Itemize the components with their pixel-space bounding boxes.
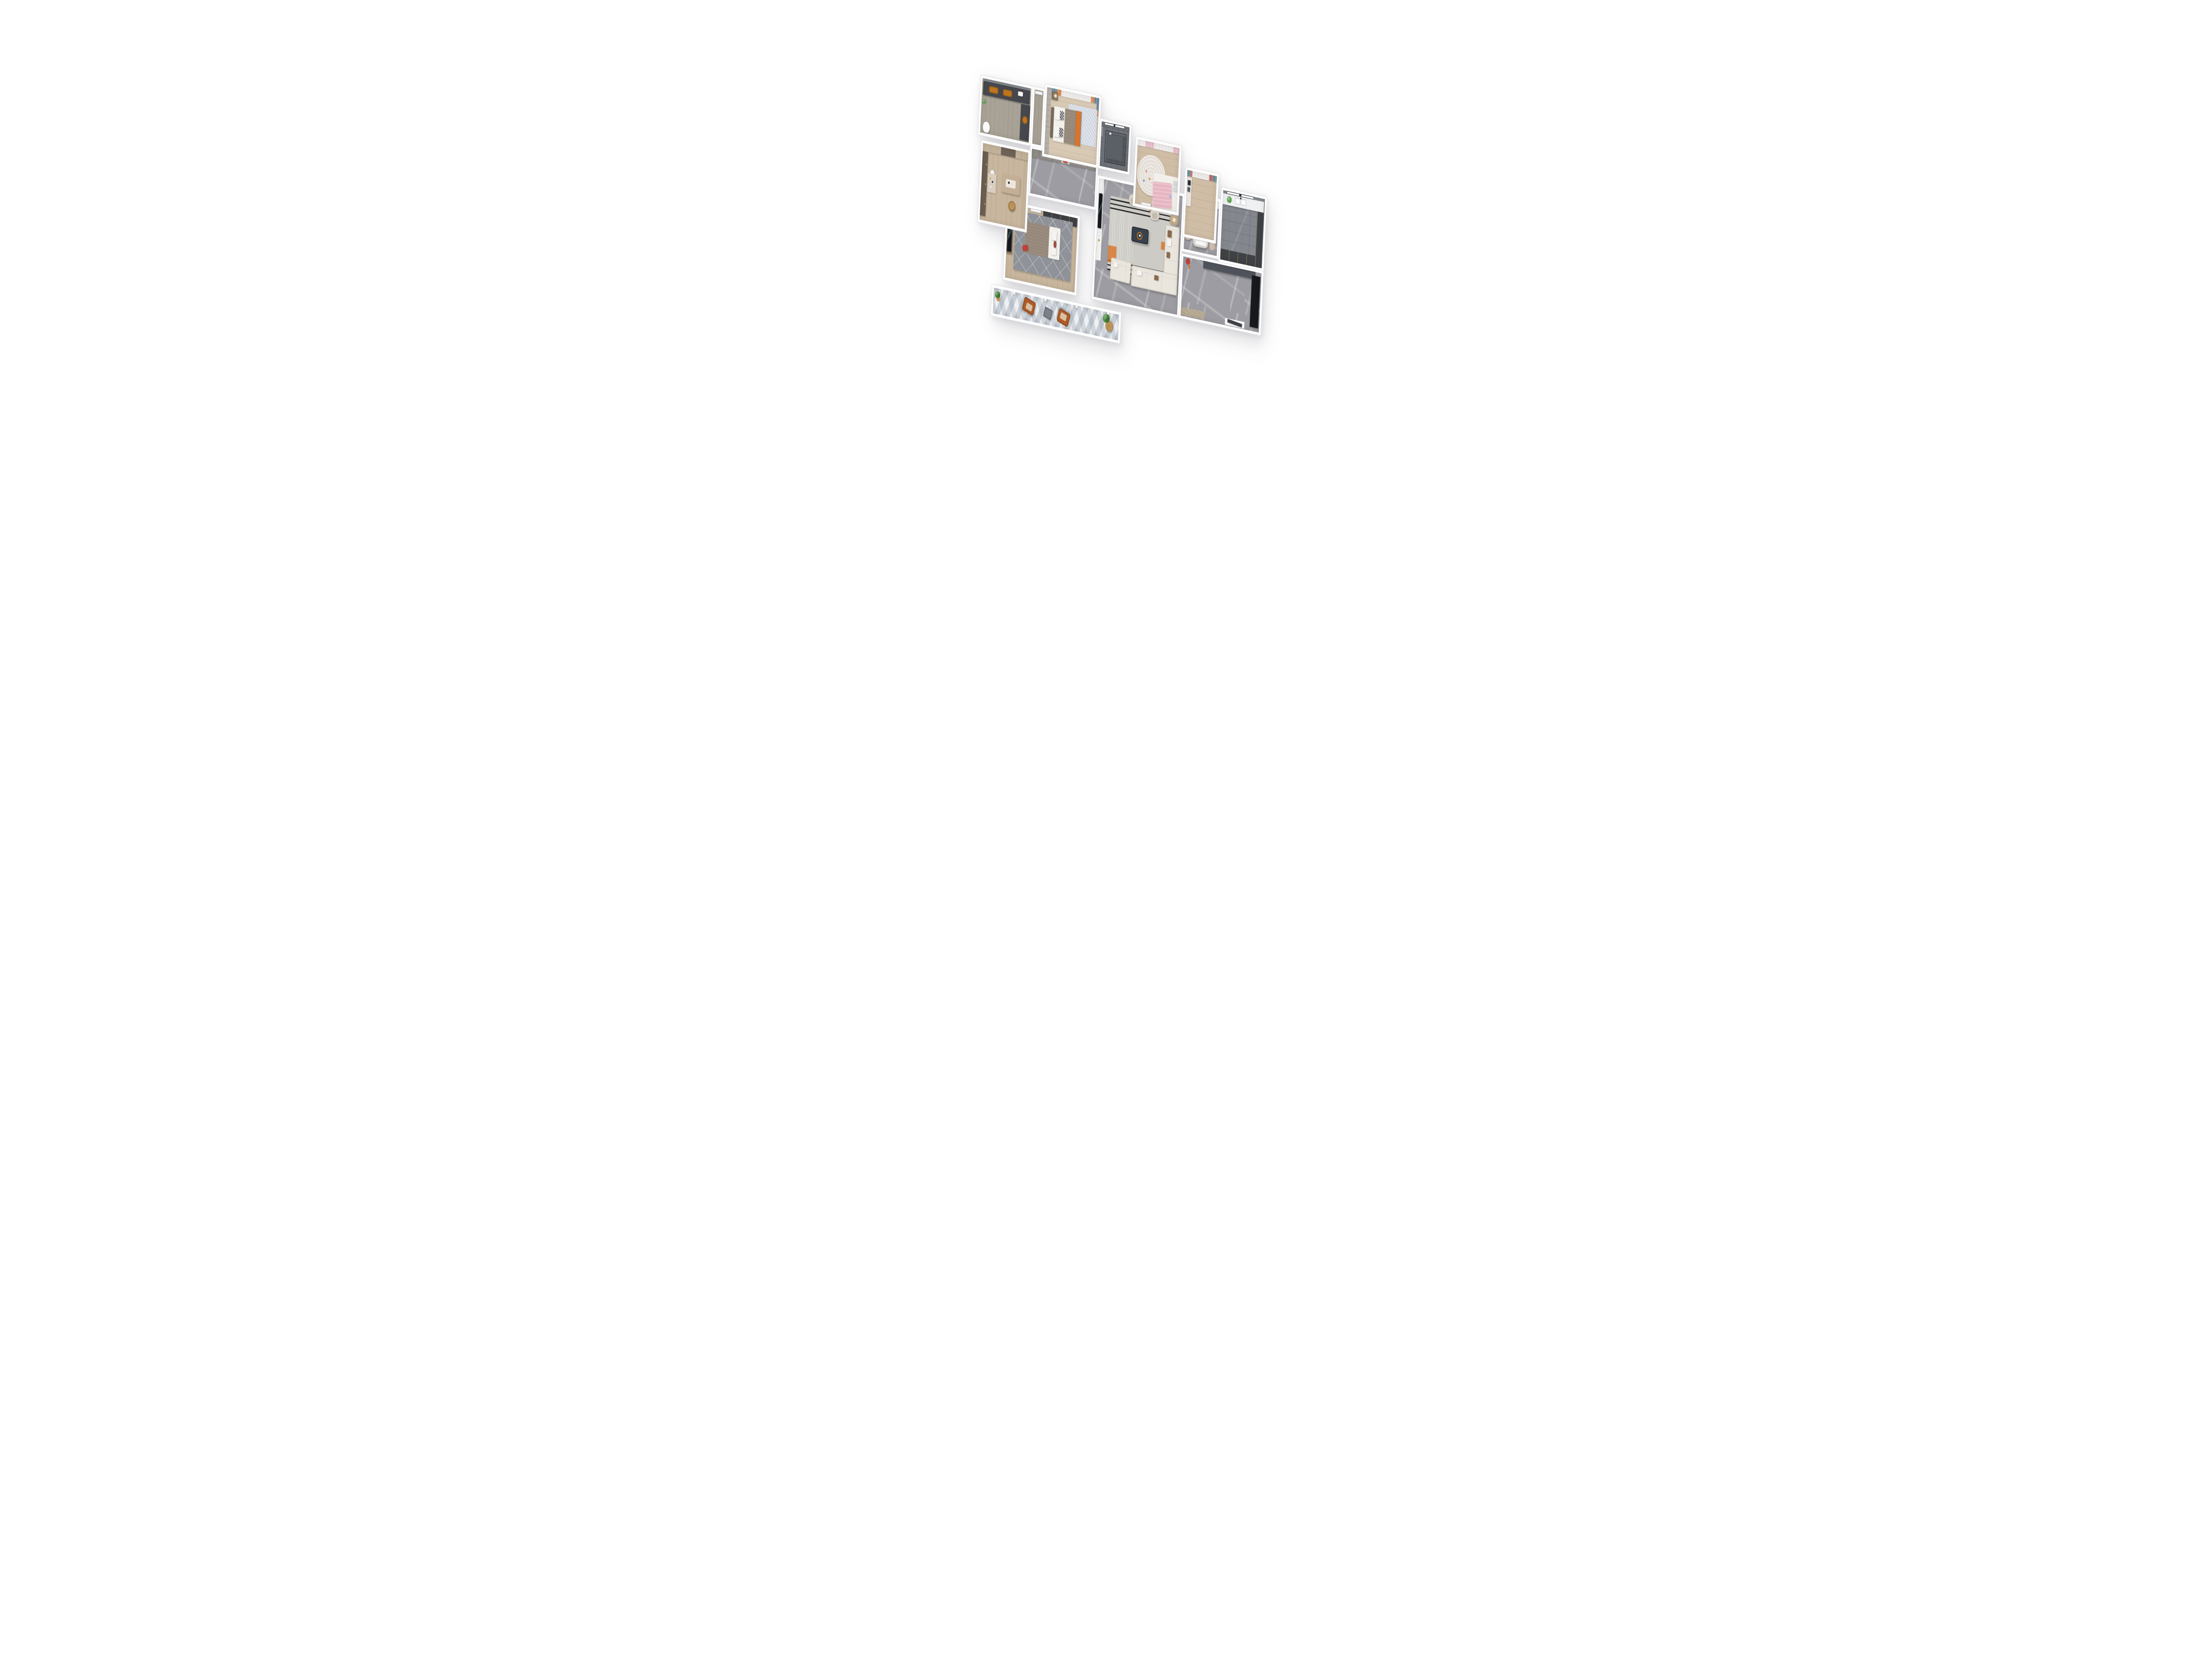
kids-door	[1141, 202, 1151, 207]
zigzag-pillow-2	[1059, 128, 1063, 137]
dressing-desk	[1001, 173, 1020, 196]
sofa-pillow-white-1	[1167, 239, 1172, 247]
teddy-bear	[1169, 195, 1172, 198]
study-curtain-teal-2	[1213, 176, 1217, 183]
oval-mirror	[1101, 126, 1103, 136]
kitchen-faucet	[1240, 197, 1241, 199]
cosmetic-3	[990, 185, 992, 188]
orange-sink-2	[1003, 89, 1012, 97]
cabinet-handle-3	[984, 203, 985, 205]
sofa-pillow-brown-2	[1167, 252, 1170, 258]
sofa-pillow-brown-3	[1154, 275, 1159, 281]
cabinet-handle-2	[985, 183, 986, 185]
rattan-stool	[1008, 200, 1016, 212]
bedroom2-blanket	[1024, 221, 1051, 258]
vanity-table	[987, 173, 996, 194]
wood-threshold	[1181, 307, 1205, 320]
glass-shower	[1104, 130, 1126, 166]
master-bedroom	[1042, 84, 1101, 168]
toilet	[983, 121, 990, 133]
kids-curtain-pink-1	[1145, 141, 1154, 149]
dressing-room	[978, 140, 1030, 232]
coat-stand	[1186, 258, 1190, 265]
kids-curtain-pink-2	[1173, 147, 1179, 154]
cabinet-handle-1	[986, 163, 987, 165]
silver-pillow-1	[1173, 181, 1178, 186]
frame-post-2	[1044, 298, 1047, 301]
master-curtains	[1051, 88, 1099, 104]
kids-bed	[1152, 172, 1179, 212]
tea-tray	[1006, 179, 1016, 189]
sofa-pillow-white-2	[1137, 270, 1142, 276]
sofa-pillow-white-3	[1114, 262, 1118, 268]
kitchen-plant	[1227, 196, 1232, 203]
living-tv	[1098, 193, 1103, 228]
shower-fixture	[1109, 132, 1112, 135]
frame-post-3	[1076, 305, 1078, 308]
closet-door	[1035, 91, 1043, 96]
study-curtain-sheer	[1192, 171, 1209, 181]
bathroom	[978, 75, 1033, 145]
ensuite-shower	[1098, 118, 1131, 175]
sofa-pillow-brown-1	[1168, 230, 1172, 238]
study	[1183, 167, 1219, 243]
study-frame-2	[1187, 187, 1190, 192]
zigzag-pillow-1	[1060, 111, 1064, 120]
bedroom2-pillow-1	[1052, 231, 1057, 241]
towel-stack	[1018, 91, 1023, 97]
tray-teaset	[1139, 234, 1141, 237]
shower-tray	[1107, 134, 1123, 161]
shower-window	[1104, 122, 1125, 129]
kids-curtain-sheer	[1154, 143, 1173, 153]
bedside-lamp	[1054, 93, 1057, 98]
nightstand	[1051, 91, 1058, 100]
maroon-pillow	[1054, 241, 1057, 248]
silver-pillow-2	[1173, 187, 1177, 192]
apartment-plan: SKYDANCE	[970, 68, 1273, 378]
kids-curtains	[1137, 139, 1179, 154]
entry-tall-cabinet	[1249, 275, 1260, 328]
kids-bedroom	[1133, 136, 1182, 215]
cosmetic-2	[992, 181, 993, 183]
study-sideboard	[1186, 177, 1192, 206]
balcony-side-table	[1043, 307, 1053, 320]
orange-vase	[1189, 264, 1190, 269]
dressing-wall-cabinets	[983, 143, 1028, 161]
toy-3	[1143, 179, 1145, 182]
accent-chair-2-cushion	[1152, 213, 1158, 219]
bathroom-plant	[983, 99, 986, 104]
curtain-sheer	[1061, 90, 1091, 102]
kitchen	[1218, 187, 1267, 271]
kids-curtain-white	[1137, 139, 1145, 147]
lounge-cushion-2	[1060, 312, 1067, 322]
orange-sink-1	[989, 86, 998, 94]
lounge-cushion-1	[1025, 302, 1033, 312]
floor-plan-scene: SKYDANCE	[823, 0, 1372, 420]
open-shelf	[1001, 147, 1016, 158]
side-table-lamp	[1172, 217, 1176, 222]
lounge-chair-2	[1056, 308, 1071, 328]
curtain-blue-2	[1094, 97, 1099, 104]
kitchen-sink-2	[1241, 199, 1246, 206]
frame-post-1	[1013, 292, 1015, 295]
bedroom2-door	[1031, 208, 1041, 213]
sculpture-decor	[1098, 232, 1101, 236]
teacup	[1012, 183, 1013, 185]
tv-feature-wall	[1095, 178, 1104, 261]
round-basin	[1022, 116, 1028, 125]
red-pillow	[1022, 245, 1028, 251]
bathroom-side-cabinet	[1019, 104, 1030, 141]
toy-1	[1146, 170, 1147, 172]
cosmetic-1	[990, 178, 991, 180]
toy-2	[1149, 178, 1151, 180]
teapot	[1008, 181, 1010, 184]
master-bed	[1050, 105, 1082, 147]
study-frame-1	[1188, 180, 1191, 185]
dressing-tall-cabinet	[980, 151, 989, 216]
lounge-chair-1	[1022, 296, 1036, 316]
kitchen-sink-1	[1235, 198, 1240, 205]
sofa-east-section	[1163, 225, 1180, 278]
gold-decor	[1098, 239, 1100, 242]
